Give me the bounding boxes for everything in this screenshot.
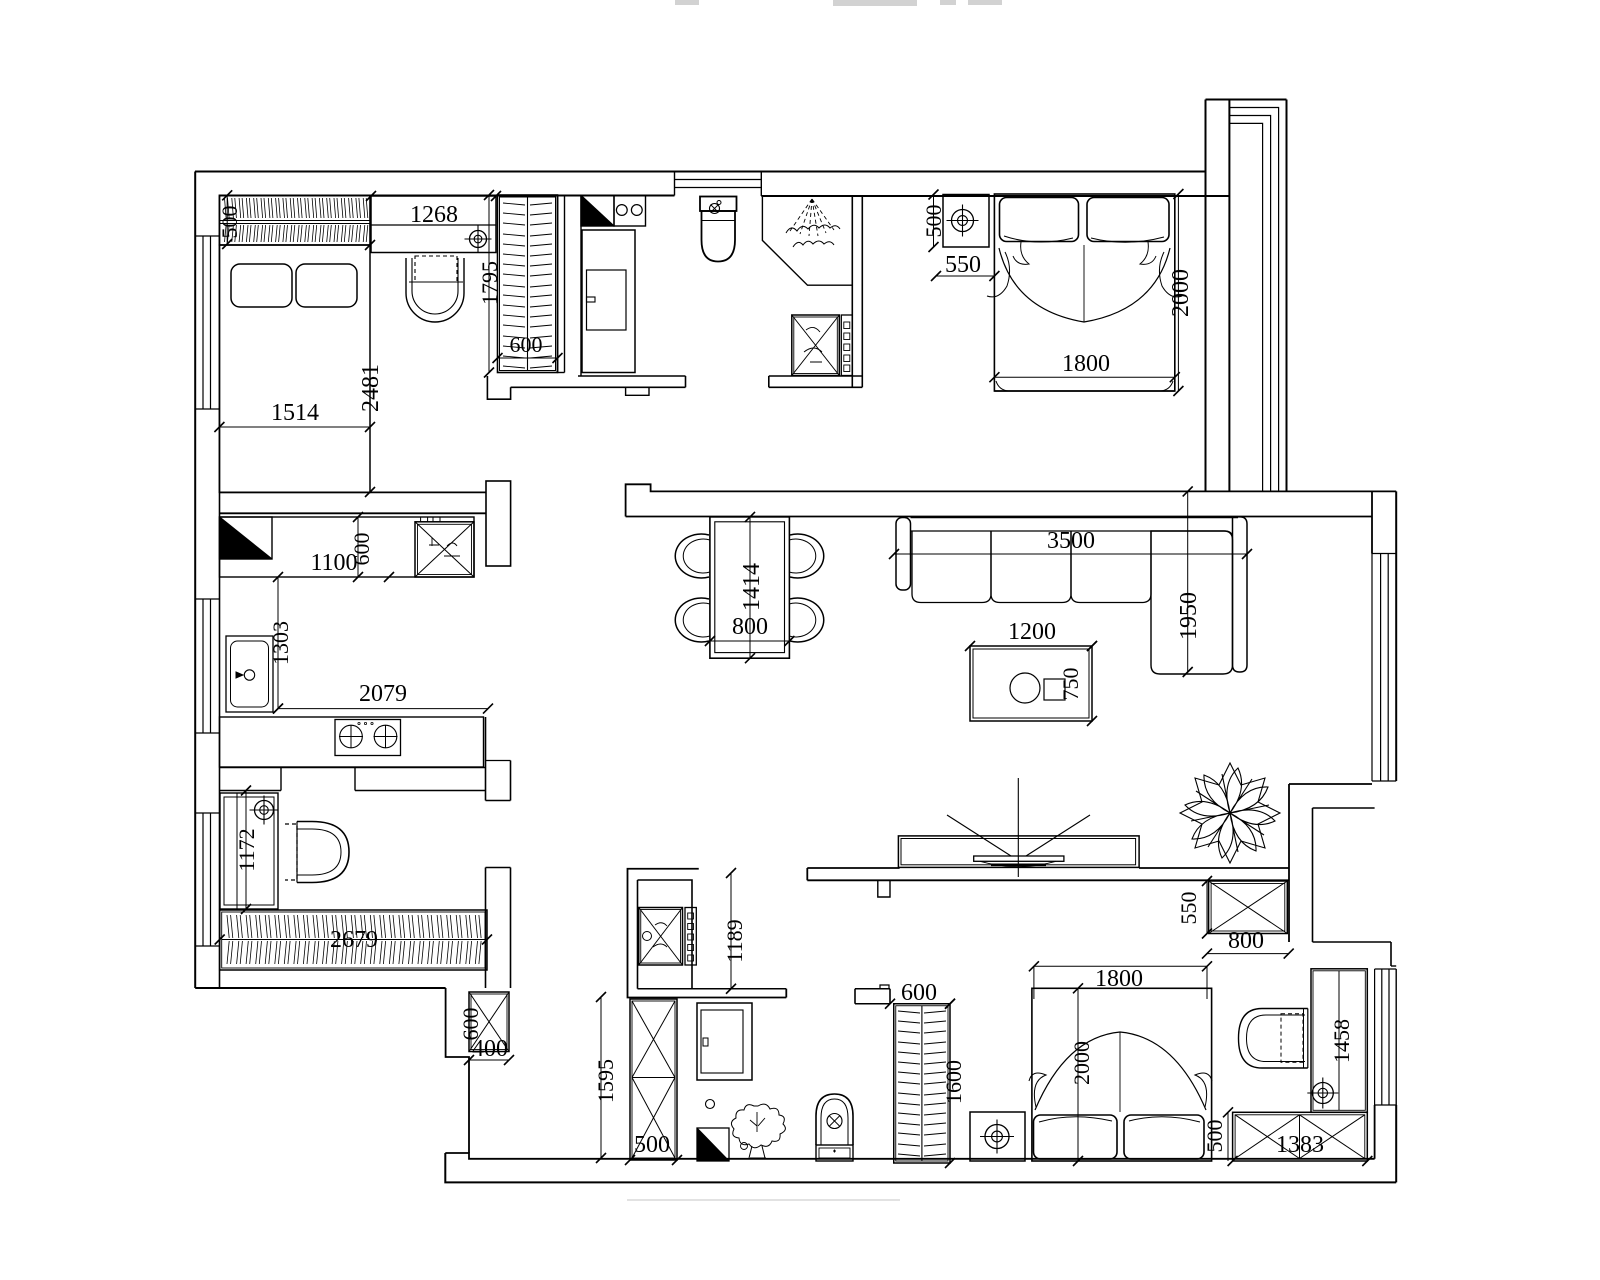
- svg-text:600: 600: [901, 980, 937, 1006]
- svg-text:600: 600: [349, 533, 374, 566]
- svg-text:600: 600: [510, 332, 543, 357]
- svg-text:1414: 1414: [739, 563, 765, 611]
- svg-text:2000: 2000: [1168, 269, 1194, 317]
- svg-text:1950: 1950: [1176, 592, 1202, 640]
- svg-text:3500: 3500: [1047, 528, 1095, 554]
- svg-text:550: 550: [1176, 892, 1201, 925]
- svg-text:1268: 1268: [410, 202, 458, 228]
- svg-text:2079: 2079: [359, 681, 407, 707]
- svg-text:800: 800: [732, 614, 768, 640]
- svg-text:1514: 1514: [271, 400, 319, 426]
- svg-text:1200: 1200: [1008, 619, 1056, 645]
- svg-text:400: 400: [472, 1036, 508, 1062]
- svg-text:1172: 1172: [234, 828, 259, 871]
- svg-text:500: 500: [1202, 1120, 1227, 1153]
- svg-text:2481: 2481: [358, 364, 384, 412]
- svg-text:750: 750: [1058, 668, 1083, 701]
- svg-text:1189: 1189: [722, 919, 747, 962]
- svg-text:1458: 1458: [1329, 1019, 1354, 1063]
- svg-text:500: 500: [634, 1132, 670, 1158]
- svg-text:1303: 1303: [268, 621, 293, 665]
- svg-text:550: 550: [945, 252, 981, 278]
- svg-text:500: 500: [921, 205, 946, 238]
- svg-text:1383: 1383: [1276, 1132, 1324, 1158]
- svg-text:500: 500: [217, 206, 242, 239]
- svg-text:800: 800: [1228, 928, 1264, 954]
- svg-text:2679: 2679: [330, 927, 378, 953]
- svg-text:2000: 2000: [1069, 1041, 1094, 1085]
- svg-text:1595: 1595: [593, 1059, 618, 1103]
- svg-text:1600: 1600: [941, 1060, 966, 1104]
- svg-text:1795: 1795: [477, 261, 502, 305]
- svg-text:1800: 1800: [1062, 351, 1110, 377]
- svg-text:1800: 1800: [1095, 966, 1143, 992]
